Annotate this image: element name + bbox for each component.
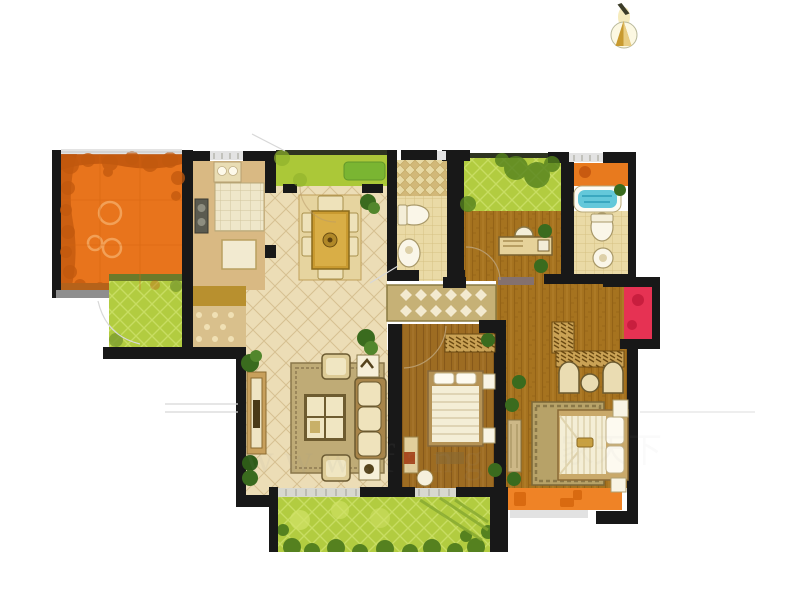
svg-text:w w w . f a n g: w w w . f a n g xyxy=(245,436,483,481)
svg-text:家天下: 家天下 xyxy=(560,432,662,470)
